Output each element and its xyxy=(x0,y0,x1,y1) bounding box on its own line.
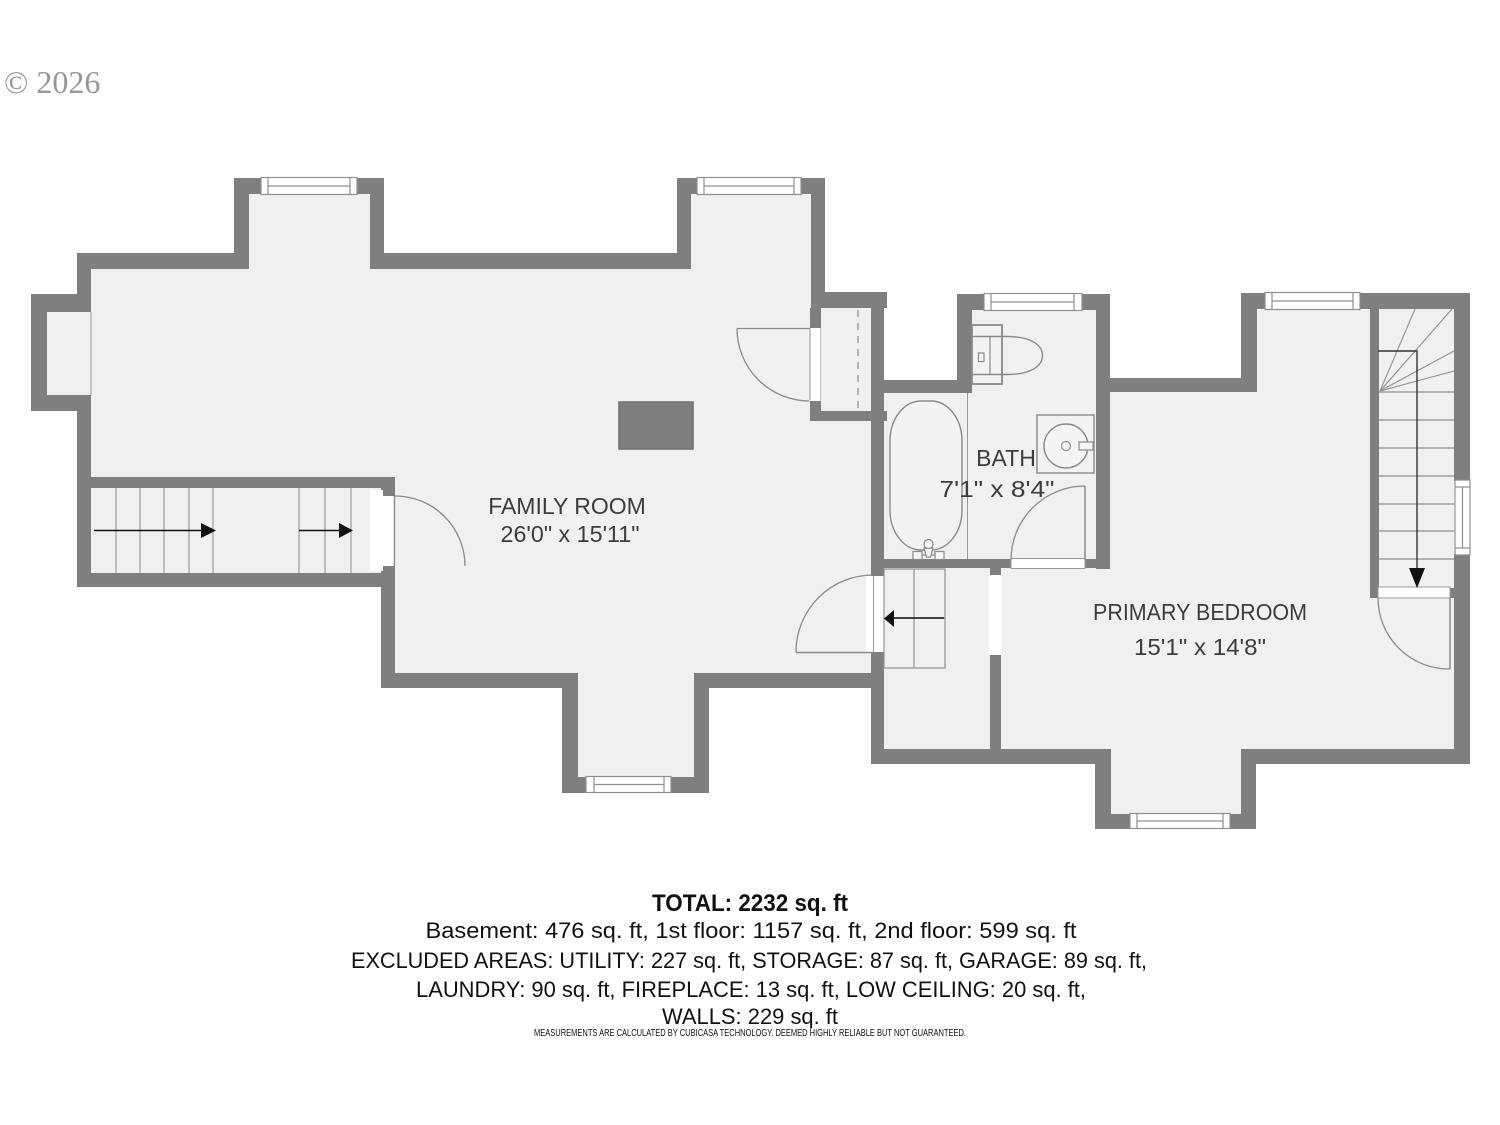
svg-text:26'0" x 15'11": 26'0" x 15'11" xyxy=(501,521,640,547)
svg-text:PRIMARY BEDROOM: PRIMARY BEDROOM xyxy=(1093,599,1307,625)
svg-text:EXCLUDED AREAS: UTILITY: 227 s: EXCLUDED AREAS: UTILITY: 227 sq. ft, STO… xyxy=(351,948,1147,973)
svg-text:MEASUREMENTS ARE CALCULATED BY: MEASUREMENTS ARE CALCULATED BY CUBICASA … xyxy=(534,1027,966,1039)
svg-text:WALLS: 229 sq. ft: WALLS: 229 sq. ft xyxy=(662,1004,838,1029)
svg-text:FAMILY ROOM: FAMILY ROOM xyxy=(488,493,646,519)
svg-text:Basement: 476 sq. ft, 1st floo: Basement: 476 sq. ft, 1st floor: 1157 sq… xyxy=(426,918,1077,943)
svg-text:© 2026: © 2026 xyxy=(4,64,100,100)
svg-text:TOTAL: 2232 sq. ft: TOTAL: 2232 sq. ft xyxy=(652,890,848,917)
svg-text:LAUNDRY: 90 sq. ft, FIREPLACE:: LAUNDRY: 90 sq. ft, FIREPLACE: 13 sq. ft… xyxy=(416,977,1086,1002)
svg-text:BATH: BATH xyxy=(976,445,1036,471)
svg-text:7'1" x 8'4": 7'1" x 8'4" xyxy=(940,476,1055,502)
svg-text:15'1" x 14'8": 15'1" x 14'8" xyxy=(1134,634,1266,660)
